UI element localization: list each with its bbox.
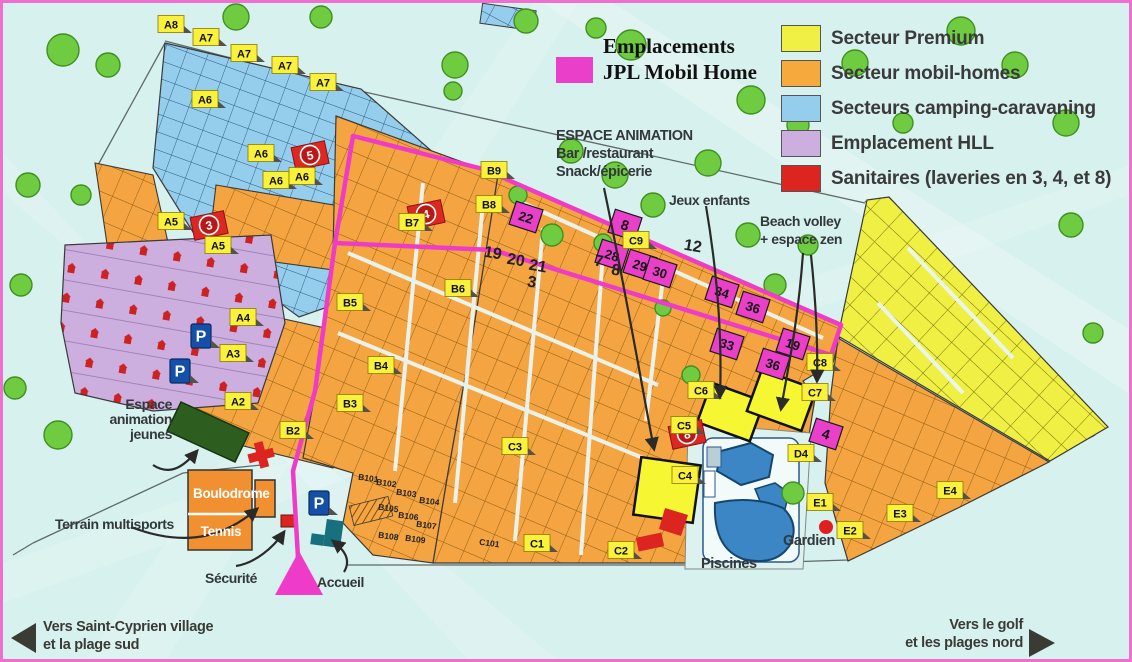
sector-badge-b9: B9 xyxy=(481,162,515,180)
label-beach-volley: Beach volley + espace zen xyxy=(760,212,840,248)
direction-northeast: Vers le golf et les plages nord xyxy=(873,616,1023,652)
legend-label: Secteurs camping-caravaning xyxy=(831,98,1096,120)
legend-label: Secteur mobil-homes xyxy=(831,63,1020,85)
legend-swatch-hll xyxy=(781,130,821,157)
label-jeux-enfants: Jeux enfants xyxy=(669,191,750,209)
svg-text:A2: A2 xyxy=(231,397,245,409)
legend-label: Secteur Premium xyxy=(831,28,984,50)
svg-text:E1: E1 xyxy=(813,498,826,510)
svg-text:A5: A5 xyxy=(211,241,225,253)
svg-text:B2: B2 xyxy=(286,426,300,438)
jpl-legend-swatch xyxy=(556,57,593,83)
svg-text:E3: E3 xyxy=(893,509,906,521)
svg-text:B4: B4 xyxy=(374,361,389,373)
svg-text:A6: A6 xyxy=(198,95,212,107)
sector-badge-a7: A7 xyxy=(231,45,265,63)
label-gardien: Gardien xyxy=(783,532,835,550)
entrance-triangle xyxy=(275,551,323,595)
map-legend: Secteur Premium Secteur mobil-homes Sect… xyxy=(781,25,1111,192)
legend-item-sanitaires: Sanitaires (laveries en 3, 4, et 8) xyxy=(781,165,1111,192)
svg-text:C5: C5 xyxy=(677,421,691,433)
plot-number-20: 20 xyxy=(506,251,527,271)
svg-text:A8: A8 xyxy=(164,20,178,32)
svg-text:B6: B6 xyxy=(451,284,465,296)
legend-item-camping: Secteurs camping-caravaning xyxy=(781,95,1111,122)
label-accueil: Accueil xyxy=(317,573,364,591)
svg-text:A7: A7 xyxy=(278,61,292,73)
label-espace-animation: ESPACE ANIMATION Bar /restaurant Snack/é… xyxy=(556,127,693,181)
jpl-legend: Emplacements JPL Mobil Home xyxy=(556,33,757,85)
svg-text:C8: C8 xyxy=(813,358,827,370)
svg-text:P: P xyxy=(314,496,325,513)
svg-text:C1: C1 xyxy=(530,539,544,551)
svg-text:C3: C3 xyxy=(508,442,522,454)
label-securite: Sécurité xyxy=(205,569,257,587)
legend-swatch-premium xyxy=(781,25,821,52)
label-terrain-multisports: Terrain multisports xyxy=(55,515,174,533)
sector-badge-a7: A7 xyxy=(193,29,227,47)
plot-number-12: 12 xyxy=(683,237,704,257)
sector-badge-a7: A7 xyxy=(310,74,344,92)
legend-label: Sanitaires (laveries en 3, 4, et 8) xyxy=(831,168,1111,190)
svg-text:P: P xyxy=(175,364,186,381)
jpl-legend-line1: Emplacements xyxy=(603,34,735,58)
jpl-legend-line2: JPL Mobil Home xyxy=(603,60,757,84)
legend-item-hll: Emplacement HLL xyxy=(781,130,1111,157)
svg-text:E4: E4 xyxy=(943,486,957,498)
svg-text:B5: B5 xyxy=(343,298,357,310)
svg-text:A6: A6 xyxy=(269,176,283,188)
svg-text:C7: C7 xyxy=(808,388,822,400)
arrow-northeast-icon xyxy=(1029,629,1055,657)
svg-text:A4: A4 xyxy=(236,313,251,325)
svg-text:A7: A7 xyxy=(237,49,251,61)
legend-swatch-camping xyxy=(781,95,821,122)
legend-item-mobilhomes: Secteur mobil-homes xyxy=(781,60,1111,87)
label-boulodrome: Boulodrome xyxy=(193,486,249,501)
sector-badge-d4: D4 xyxy=(788,445,822,463)
svg-text:A3: A3 xyxy=(226,349,240,361)
legend-label: Emplacement HLL xyxy=(831,133,994,155)
svg-text:B7: B7 xyxy=(405,218,419,230)
svg-text:B3: B3 xyxy=(343,399,357,411)
arrow-southwest-icon xyxy=(11,623,36,653)
svg-text:C4: C4 xyxy=(678,471,693,483)
legend-item-premium: Secteur Premium xyxy=(781,25,1111,52)
sector-badge-a8: A8 xyxy=(158,16,192,34)
svg-text:P: P xyxy=(196,329,207,346)
plot-number-19: 19 xyxy=(483,244,504,264)
svg-text:A7: A7 xyxy=(316,78,330,90)
legend-swatch-sanitaires xyxy=(781,165,821,192)
campsite-map: 22828293034363336194 19202137812 B101B10… xyxy=(0,0,1132,662)
svg-text:B9: B9 xyxy=(487,166,501,178)
direction-southwest: Vers Saint-Cyprien village et la plage s… xyxy=(43,618,213,654)
svg-text:C2: C2 xyxy=(614,546,628,558)
svg-text:A6: A6 xyxy=(254,149,268,161)
svg-text:C6: C6 xyxy=(694,386,708,398)
svg-text:A5: A5 xyxy=(164,217,178,229)
svg-text:C9: C9 xyxy=(629,236,643,248)
svg-text:A6: A6 xyxy=(295,172,309,184)
svg-text:A7: A7 xyxy=(199,33,213,45)
sector-badge-a7: A7 xyxy=(272,57,306,75)
label-tennis: Tennis xyxy=(193,524,249,539)
svg-text:D4: D4 xyxy=(794,449,809,461)
legend-swatch-mobilhomes xyxy=(781,60,821,87)
label-piscines: Piscines xyxy=(701,555,757,573)
label-espace-jeunes: Espace animation jeunes xyxy=(98,397,172,442)
svg-text:E2: E2 xyxy=(843,526,856,538)
accueil-building xyxy=(310,519,343,548)
svg-text:B8: B8 xyxy=(482,200,496,212)
